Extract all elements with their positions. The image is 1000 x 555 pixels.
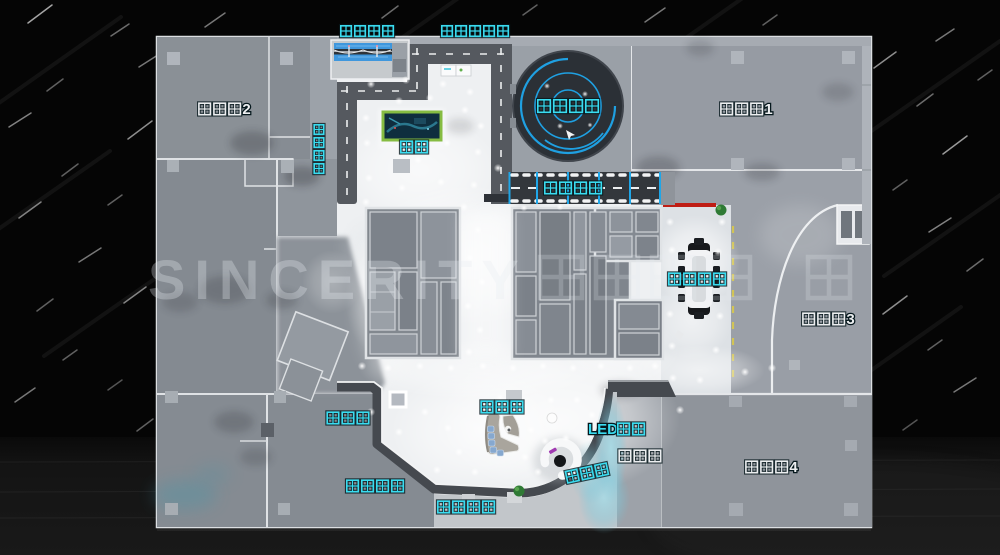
svg-text:1: 1 [764, 101, 772, 118]
svg-text:3: 3 [846, 311, 854, 328]
svg-text:SINCERITY: SINCERITY [148, 248, 528, 311]
svg-text:2: 2 [242, 101, 250, 118]
svg-text:4: 4 [789, 459, 798, 476]
svg-text:LED: LED [588, 421, 618, 438]
